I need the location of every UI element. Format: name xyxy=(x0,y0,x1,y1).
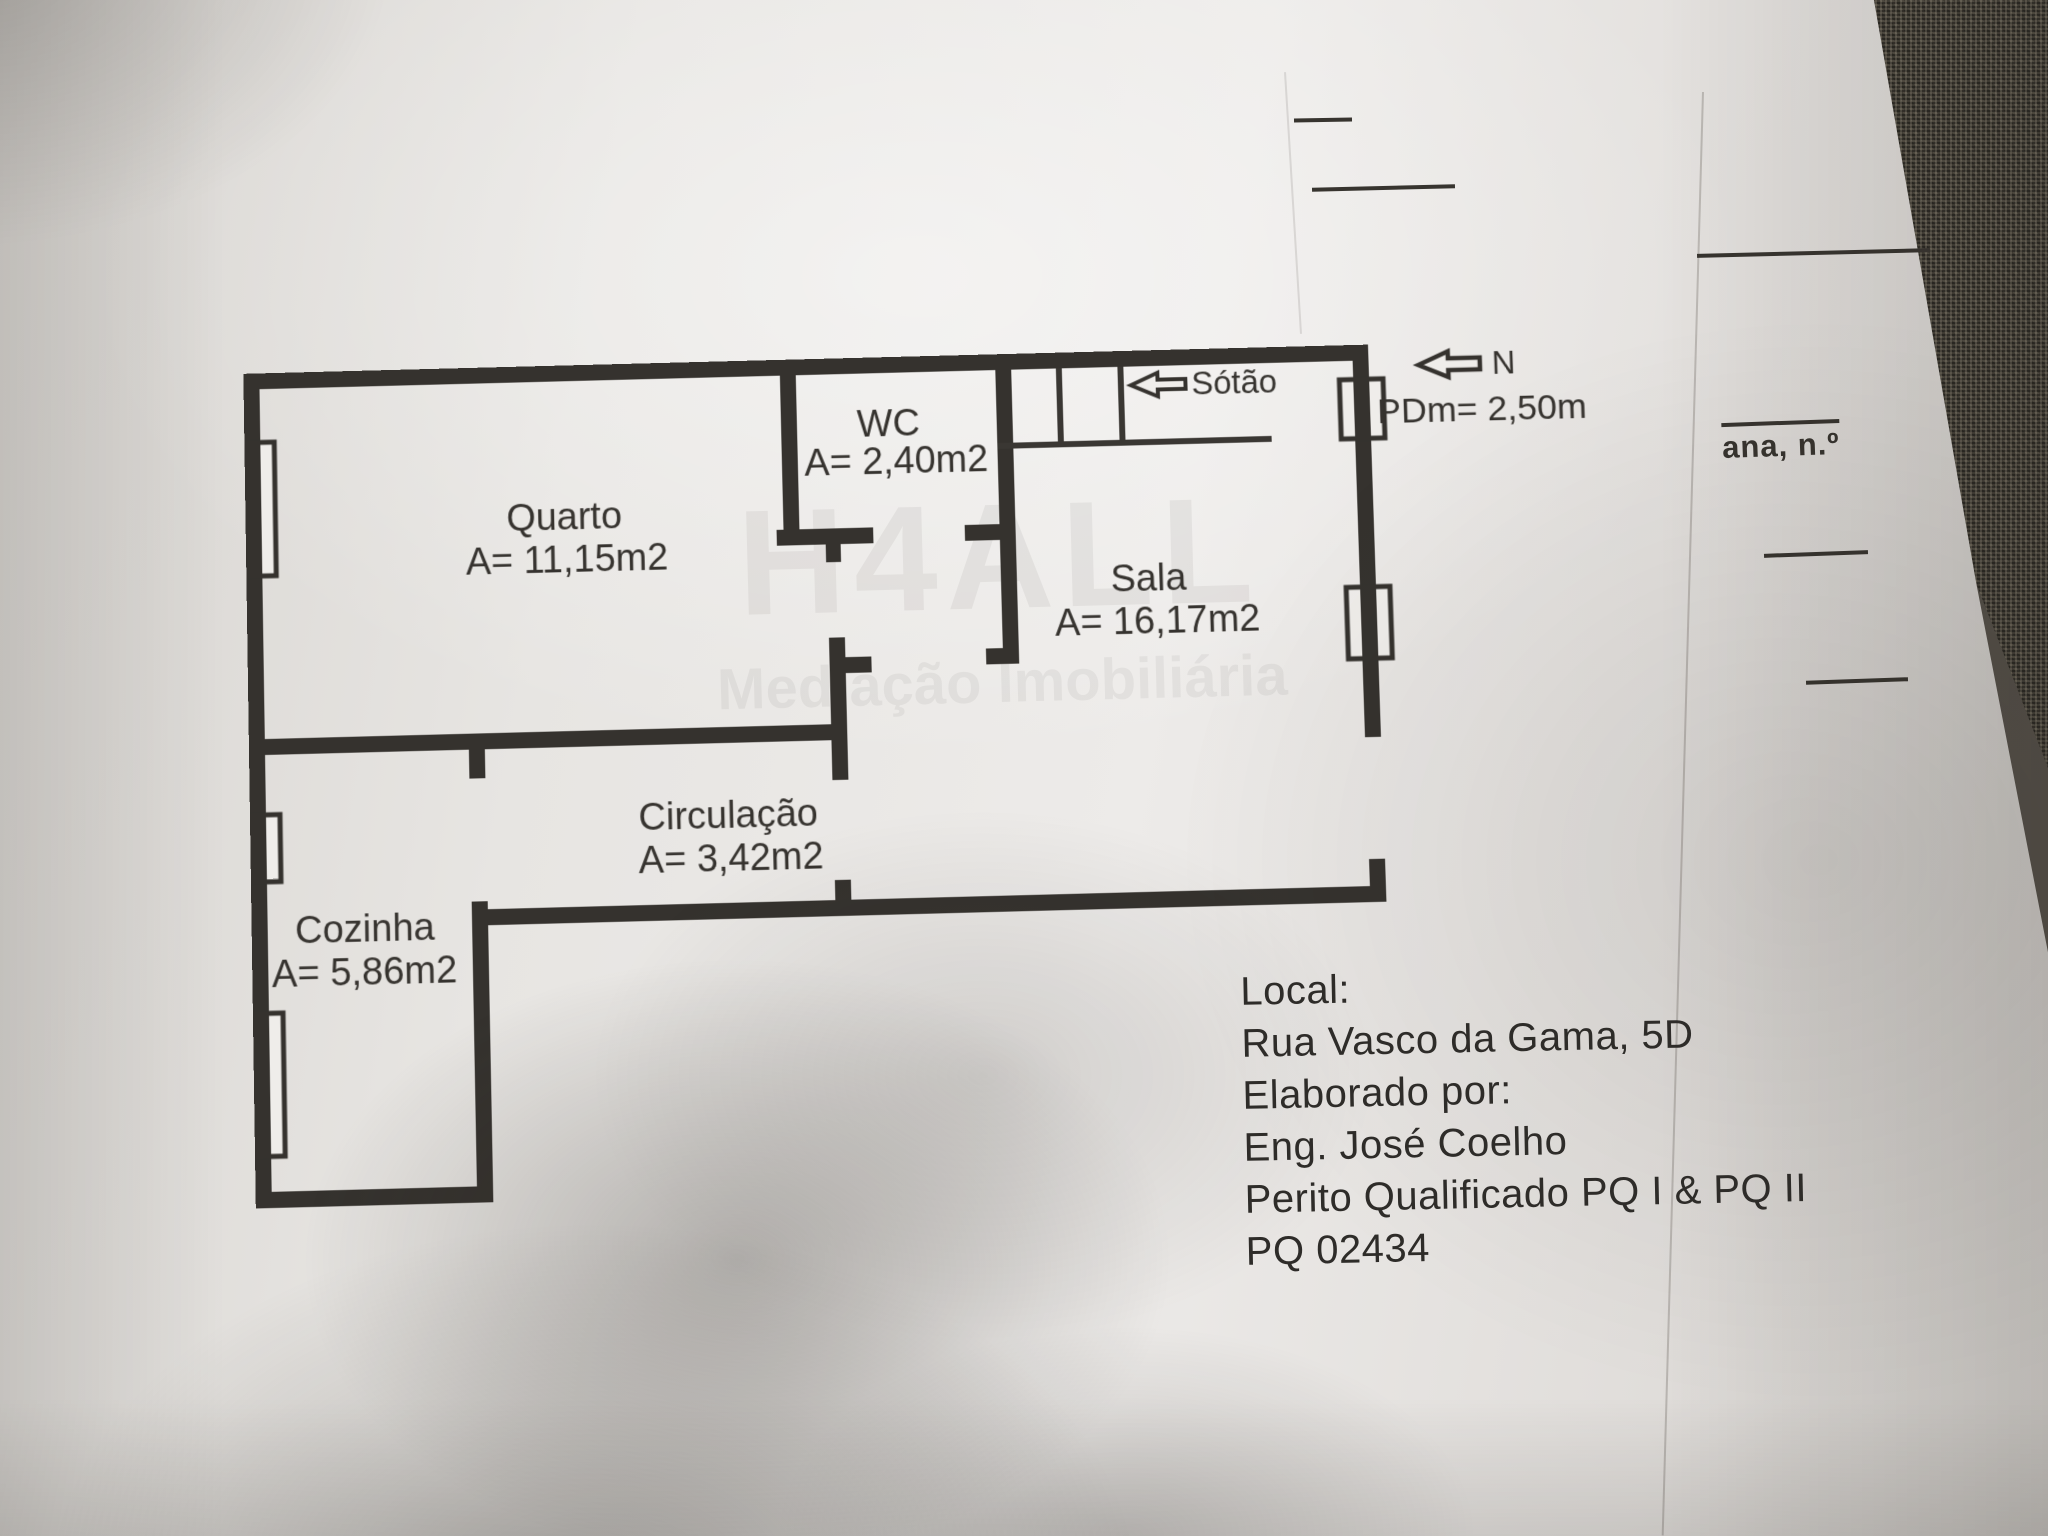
underlying-sheet-partial-text: ana, n.º xyxy=(1721,419,1840,466)
sala-area-label: A= 16,17m2 xyxy=(1055,598,1261,645)
stair-tread-line xyxy=(1117,367,1125,446)
wc-area-label: A= 2,40m2 xyxy=(804,438,989,484)
right-wall-segment-2 xyxy=(1355,438,1376,587)
sala-west-wall xyxy=(995,370,1019,664)
cozinha-bottom-wall xyxy=(256,1186,494,1208)
circulacao-area-label: A= 3,42m2 xyxy=(638,835,824,882)
sala-label: Sala xyxy=(1110,557,1188,601)
quarto-label: Quarto xyxy=(506,495,622,540)
south-wall xyxy=(472,886,1387,926)
wc-west-wall xyxy=(780,375,800,545)
corridor-east-door-jamb xyxy=(835,880,852,900)
quarto-window-icon xyxy=(243,442,276,577)
north-label: N xyxy=(1491,344,1516,381)
wc-south-wall-west xyxy=(777,527,874,545)
attic-label: Sótão xyxy=(1191,363,1278,402)
ceiling-height-label: PDm= 2,50m xyxy=(1376,386,1587,431)
cozinha-area-label: A= 5,86m2 xyxy=(272,949,458,996)
sala-window-icon xyxy=(1346,586,1392,659)
right-wall-segment-3 xyxy=(1362,658,1381,737)
attic-direction-arrow-icon xyxy=(1131,372,1186,397)
circulacao-label: Circulação xyxy=(638,792,818,839)
stairs-base-line xyxy=(997,436,1271,449)
photo-of-floor-plan-document: ana, n.º H4ALL Mediação Imobiliária xyxy=(0,0,2048,1536)
quarto-bottom-wall xyxy=(249,724,848,756)
cozinha-label: Cozinha xyxy=(295,906,436,952)
windows xyxy=(243,379,1408,1158)
cozinha-east-wall xyxy=(472,901,494,1202)
wc-door-jamb xyxy=(826,544,841,562)
cozinha-door-jamb xyxy=(469,749,486,778)
info-block: Local: Rua Vasco da Gama, 5D Elaborado p… xyxy=(1240,954,1806,1278)
north-arrow-icon xyxy=(1418,351,1480,378)
corridor-east-wall-tab xyxy=(845,656,871,673)
sala-west-wall-tab xyxy=(986,648,1003,664)
right-wall-segment-4 xyxy=(1369,859,1386,902)
quarto-area-label: A= 11,15m2 xyxy=(465,537,668,584)
stair-tread-line xyxy=(1056,368,1064,447)
